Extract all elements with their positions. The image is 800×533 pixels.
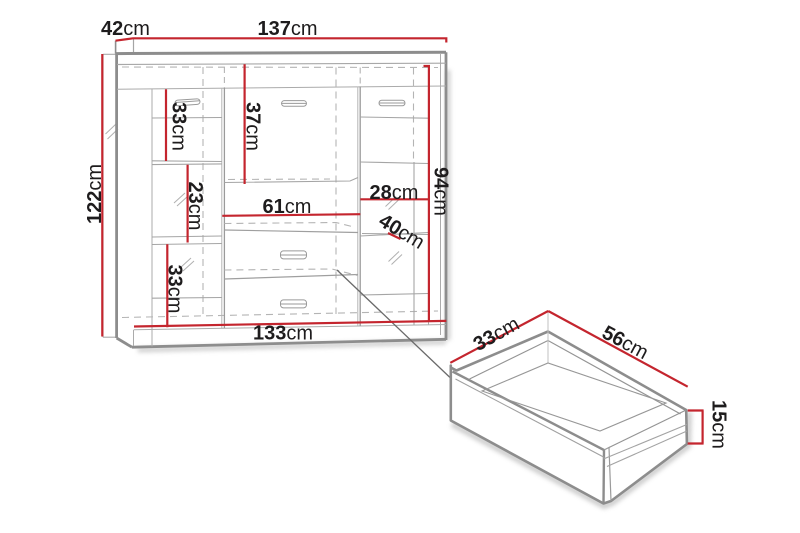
svg-text:33cm: 33cm (168, 102, 190, 151)
svg-text:137cm: 137cm (257, 18, 317, 40)
svg-text:42cm: 42cm (101, 18, 150, 40)
svg-text:33cm: 33cm (164, 265, 186, 314)
svg-text:23cm: 23cm (184, 182, 206, 231)
svg-text:61cm: 61cm (263, 196, 312, 218)
svg-text:122cm: 122cm (84, 164, 106, 224)
svg-text:133cm: 133cm (253, 323, 313, 345)
svg-text:37cm: 37cm (242, 102, 264, 151)
svg-text:15cm: 15cm (708, 400, 730, 449)
svg-text:94cm: 94cm (430, 167, 452, 216)
svg-text:28cm: 28cm (370, 182, 419, 204)
